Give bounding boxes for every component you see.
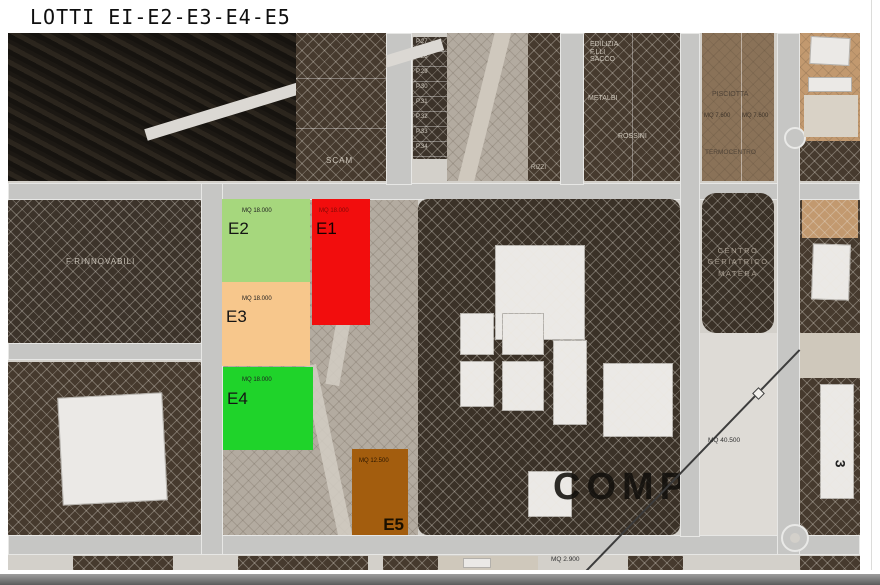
- lot-area-label: MQ 12.500: [359, 458, 389, 464]
- bottom-strip-parcel: [628, 556, 683, 570]
- open-area-mq40500: [700, 333, 777, 535]
- area-label: MQ 7.600: [704, 113, 730, 120]
- parcel-label: SCAM: [326, 157, 353, 166]
- window-bottom-bar: [0, 574, 880, 585]
- lot-e4: MQ 18.000 E4: [223, 367, 313, 450]
- bottom-strip-parcel: [383, 556, 438, 570]
- lot-id-label: E3: [226, 307, 247, 327]
- page-edge-line: [871, 0, 872, 570]
- lot-area-label: MQ 18.000: [242, 377, 272, 383]
- parcel-label: P.30: [413, 82, 447, 97]
- lot-e5: MQ 12.500 E5: [352, 449, 408, 535]
- lot-id-label: E5: [383, 515, 404, 535]
- plan-page: LOTTI EI-E2-E3-E4-E5 SCAM P.27P.28P.29P.…: [0, 0, 880, 585]
- open-dirt-area: [447, 33, 528, 181]
- lot-e1: MQ 18.000 E1: [312, 199, 370, 325]
- parcel-label: P.31: [413, 97, 447, 112]
- parcel-centro-geriatrico: CENTROGERIATRICOMATERA: [702, 193, 774, 333]
- page-title: LOTTI EI-E2-E3-E4-E5: [30, 5, 291, 29]
- road-bottom-horizontal: [8, 535, 860, 555]
- lot-id-label: E1: [316, 219, 337, 239]
- lot-area-label: MQ 18.000: [242, 296, 272, 302]
- parcel-label: P.32: [413, 112, 447, 127]
- parcel-edilizia-sacco: EDILIZIAF.LLISACCO METALBI ROSSINI: [584, 33, 680, 181]
- rightedge-parcel-lower: 3: [800, 378, 860, 535]
- lot-e2: MQ 18.000 E2: [222, 199, 310, 282]
- roundabout-top: [784, 127, 806, 149]
- roundabout-island: [790, 533, 800, 543]
- parcel-label: P.33: [413, 127, 447, 142]
- rightedge-parcel-upper: [800, 200, 860, 333]
- parcel-label: P.29: [413, 67, 447, 82]
- parcel-label: TERMOCENTRO: [705, 149, 756, 156]
- building-number-label: 3: [832, 460, 847, 468]
- road-left-horizontal: [8, 343, 212, 360]
- company-name-label: COMPA: [553, 467, 680, 509]
- road-vertical-e: [201, 183, 223, 555]
- lot-area-label: MQ 18.000: [319, 208, 349, 214]
- parcel-label: METALBI: [588, 95, 617, 103]
- leftbottom-parcel: [8, 362, 201, 535]
- topright-dark-parcel: [800, 141, 860, 181]
- parcel-rinnovabili: F.RINNOVABILI: [8, 200, 201, 343]
- rightedge-rubble: [800, 333, 860, 378]
- bottom-strip-parcel: [238, 556, 368, 570]
- parcel-label: F.RINNOVABILI: [66, 258, 135, 267]
- parcel-label: CENTROGERIATRICOMATERA: [702, 245, 774, 279]
- central-industrial-parcel: COMPA: [418, 199, 680, 535]
- parcel-scam: SCAM: [296, 33, 386, 181]
- bottom-strip-parcel: [438, 556, 538, 570]
- area-label: MQ 7.600: [742, 113, 768, 120]
- parcel-rizzi: RIZZI: [528, 33, 560, 181]
- aerial-site-plan: SCAM P.27P.28P.29P.30P.31P.32P.33P.34 RI…: [8, 33, 860, 570]
- parcel-label: RIZZI: [531, 165, 546, 172]
- bottom-strip-parcel: [73, 556, 173, 570]
- lot-id-label: E2: [228, 219, 249, 239]
- parcel-label: EDILIZIAF.LLISACCO: [590, 41, 618, 64]
- road-vertical-d: [777, 33, 800, 555]
- lot-area-label: MQ 18.000: [242, 208, 272, 214]
- lot-id-label: E4: [227, 389, 248, 409]
- parcel-pisciotta: PISCIOTTA MQ 7.600 MQ 7.600 TERMOCENTRO: [702, 33, 774, 181]
- bottom-strip-parcel: [800, 556, 860, 570]
- parcel-label: ROSSINI: [618, 133, 647, 141]
- lot-e3: MQ 18.000 E3: [222, 282, 310, 366]
- area-label: MQ 40.500: [708, 437, 740, 444]
- road-vertical-b: [560, 33, 584, 185]
- parcel-label: PISCIOTTA: [712, 91, 748, 99]
- area-label: MQ 2.900: [551, 556, 580, 563]
- parcel-label: P.34: [413, 142, 447, 157]
